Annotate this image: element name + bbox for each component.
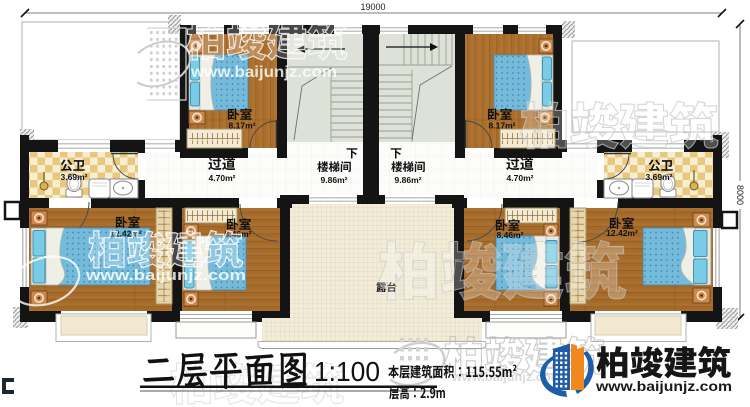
svg-text:www.baijunjz.com: www.baijunjz.com [190,64,337,81]
svg-text:9.86m²: 9.86m² [321,175,348,185]
svg-text:19000: 19000 [360,2,385,12]
svg-text:1:100: 1:100 [314,356,380,387]
svg-text:8.17m²: 8.17m² [229,121,256,131]
svg-text:3.69m²: 3.69m² [61,172,88,182]
svg-text:12.42m²: 12.42m² [606,228,638,238]
svg-text:www.baijunjz.com: www.baijunjz.com [595,378,732,394]
svg-text:8.17m²: 8.17m² [489,121,516,131]
svg-text:4.70m²: 4.70m² [209,173,236,183]
svg-text:3.69m²: 3.69m² [646,172,673,182]
svg-text:9.86m²: 9.86m² [395,175,422,185]
svg-text:www.baijunjz.com: www.baijunjz.com [85,267,246,284]
svg-text:8000: 8000 [735,185,745,205]
svg-text:4.70m²: 4.70m² [507,173,534,183]
svg-text:8.46m²: 8.46m² [497,230,524,240]
